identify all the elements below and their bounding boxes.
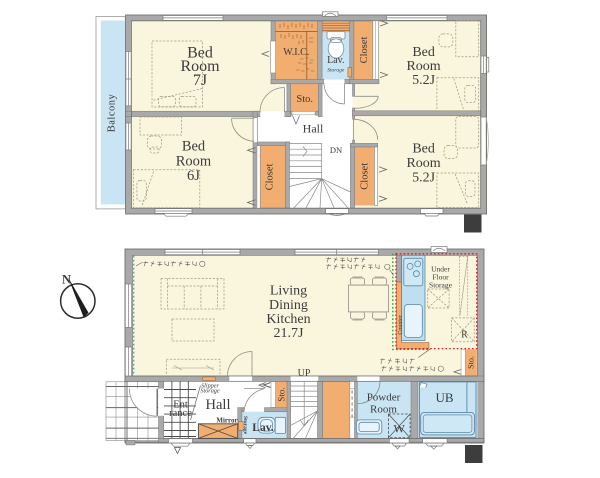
- svg-text:Powder: Powder: [367, 392, 401, 404]
- svg-text:Storage: Storage: [242, 416, 248, 435]
- svg-text:R: R: [461, 330, 468, 341]
- svg-text:2F: 2F: [466, 217, 481, 232]
- svg-text:7J: 7J: [193, 72, 207, 89]
- svg-text:Room: Room: [406, 156, 440, 171]
- svg-text:Mirror: Mirror: [216, 417, 237, 425]
- svg-text:6J: 6J: [187, 168, 200, 184]
- svg-text:Closet: Closet: [359, 163, 370, 190]
- svg-text:UP: UP: [298, 368, 311, 379]
- svg-text:W: W: [394, 422, 406, 436]
- svg-text:Storage: Storage: [200, 388, 220, 395]
- svg-text:Room: Room: [406, 59, 440, 74]
- svg-text:Lav.: Lav.: [252, 422, 274, 434]
- svg-text:Room: Room: [370, 404, 397, 416]
- svg-text:Dining: Dining: [269, 298, 308, 313]
- svg-text:Closet: Closet: [265, 164, 276, 191]
- svg-text:N: N: [62, 273, 71, 287]
- svg-text:Sto.: Sto.: [467, 356, 476, 369]
- svg-text:1F: 1F: [467, 447, 482, 462]
- svg-text:5.2J: 5.2J: [412, 73, 436, 88]
- svg-text:Bed: Bed: [182, 139, 206, 155]
- svg-text:Hall: Hall: [206, 397, 231, 413]
- svg-text:Storage: Storage: [327, 68, 345, 74]
- svg-text:Lav.: Lav.: [327, 55, 344, 66]
- svg-text:21.7J: 21.7J: [274, 326, 305, 341]
- svg-text:Closet: Closet: [359, 37, 370, 64]
- svg-text:Sto.: Sto.: [277, 387, 287, 401]
- svg-text:Living: Living: [270, 284, 307, 299]
- svg-text:Kitchen: Kitchen: [266, 312, 310, 327]
- svg-text:DN: DN: [330, 145, 342, 155]
- svg-text:5.2J: 5.2J: [412, 171, 436, 186]
- svg-text:rance: rance: [169, 408, 192, 419]
- svg-text:UB: UB: [435, 390, 453, 405]
- svg-text:Balcony: Balcony: [107, 94, 118, 133]
- svg-text:Counter: Counter: [398, 315, 404, 334]
- svg-text:Bed: Bed: [412, 142, 435, 157]
- svg-text:W.I.C.: W.I.C.: [283, 47, 309, 58]
- svg-text:Storage: Storage: [429, 281, 453, 290]
- svg-text:Hall: Hall: [303, 122, 324, 136]
- svg-text:Bed: Bed: [412, 45, 435, 60]
- svg-text:Sto.: Sto.: [296, 94, 313, 105]
